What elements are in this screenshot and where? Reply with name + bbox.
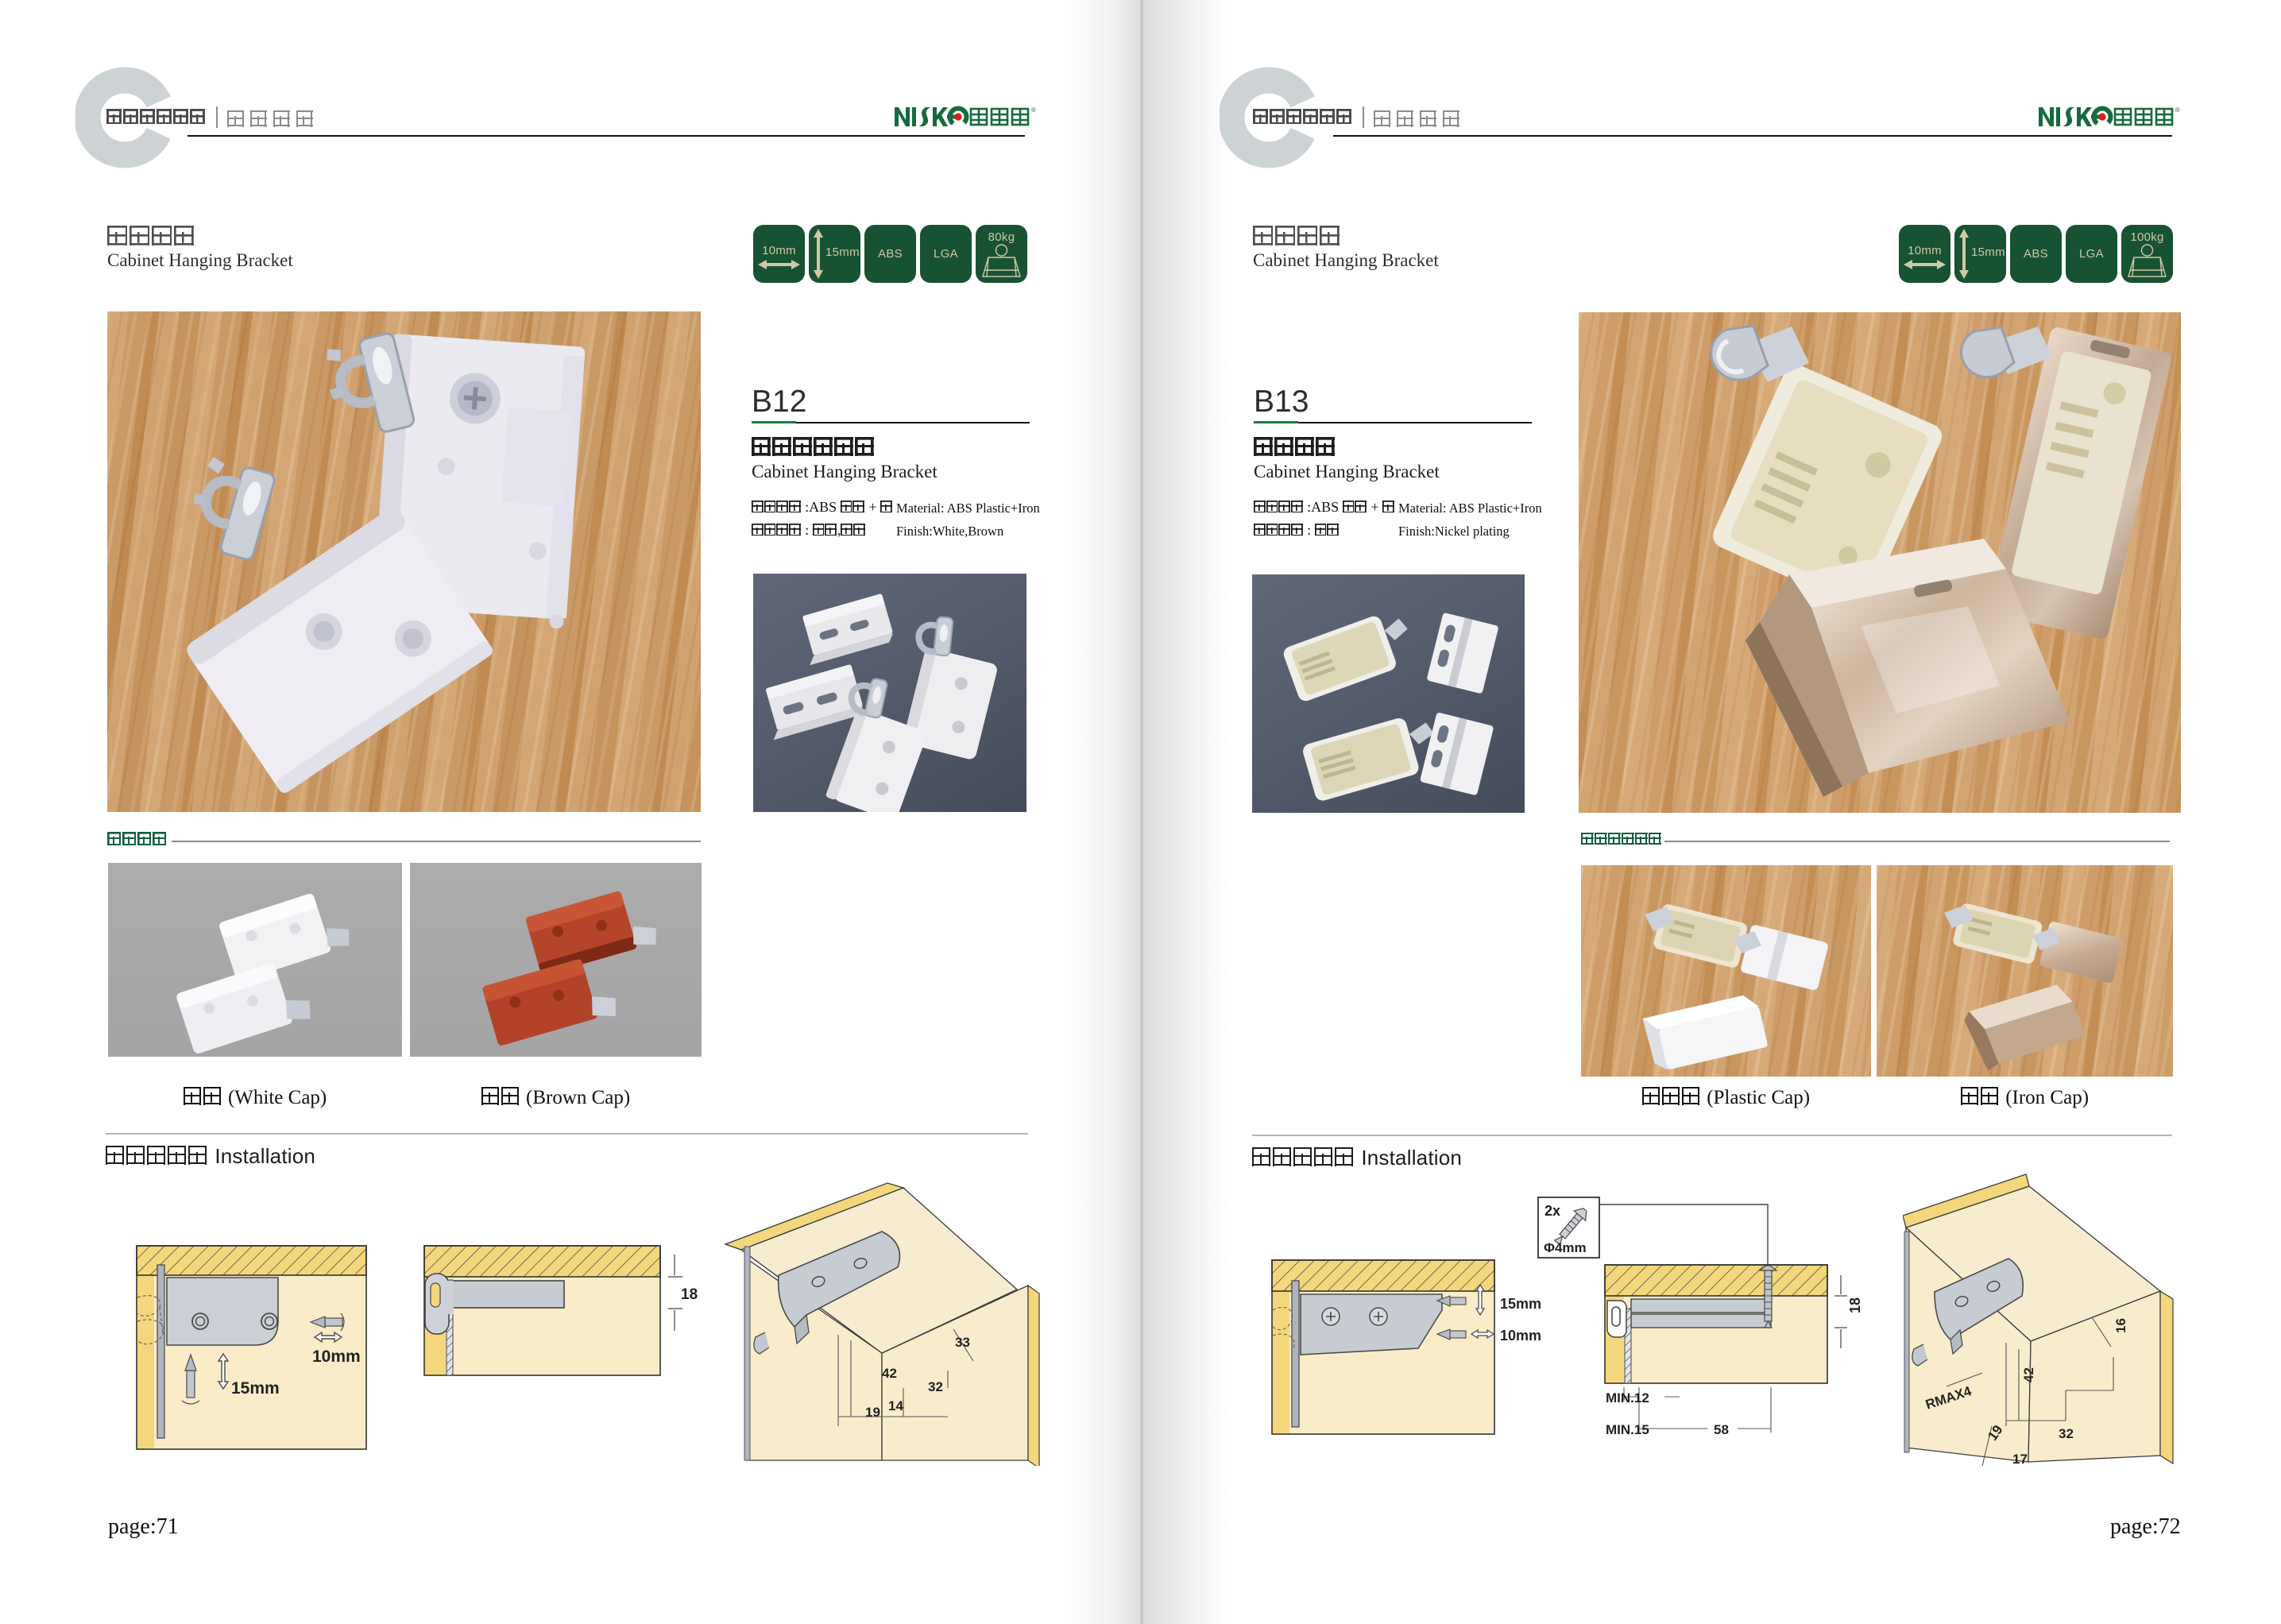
svg-text:19: 19: [865, 1405, 880, 1420]
svg-text:16: 16: [2113, 1318, 2128, 1333]
svg-text:15mm: 15mm: [231, 1379, 280, 1398]
svg-text:42: 42: [882, 1366, 897, 1381]
svg-text:17: 17: [2012, 1452, 2028, 1467]
svg-text:®: ®: [2175, 106, 2180, 114]
svg-text:2x: 2x: [1545, 1203, 1560, 1219]
svg-text:14: 14: [888, 1398, 903, 1413]
svg-text:®: ®: [1031, 106, 1036, 114]
svg-text:18: 18: [1847, 1297, 1863, 1313]
svg-text:18: 18: [681, 1286, 698, 1303]
svg-text:15mm: 15mm: [1500, 1296, 1541, 1312]
svg-text:58: 58: [1714, 1422, 1729, 1437]
svg-text:42: 42: [2021, 1367, 2036, 1382]
svg-text:10mm: 10mm: [1500, 1328, 1541, 1344]
svg-text:33: 33: [955, 1335, 970, 1350]
svg-text:MIN.12: MIN.12: [1606, 1390, 1649, 1406]
svg-text:32: 32: [2059, 1426, 2074, 1441]
svg-text:10mm: 10mm: [312, 1348, 361, 1366]
svg-text:MIN.15: MIN.15: [1606, 1422, 1649, 1437]
svg-text:Φ4mm: Φ4mm: [1544, 1240, 1587, 1255]
svg-text:32: 32: [928, 1379, 943, 1394]
